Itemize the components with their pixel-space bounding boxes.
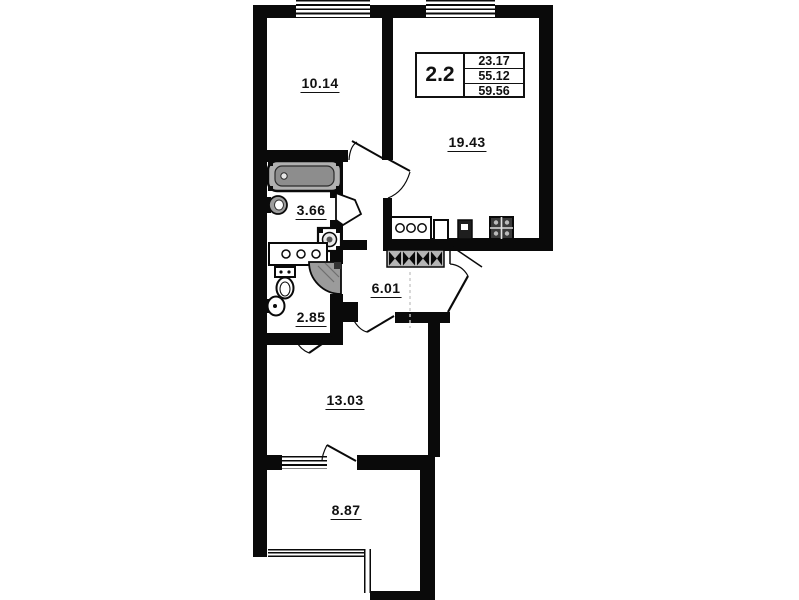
door-swing xyxy=(386,158,410,171)
door-arc xyxy=(353,319,367,332)
wm-door xyxy=(327,237,333,243)
room-label: 3.66 xyxy=(296,203,327,220)
counter-ring xyxy=(407,224,415,232)
door-swing xyxy=(352,141,384,159)
room-label: 19.43 xyxy=(447,135,486,152)
door-arc xyxy=(322,445,327,461)
counter-ring xyxy=(282,250,290,258)
tub-corner xyxy=(268,161,273,166)
title-block-row: 23.17 xyxy=(465,54,523,69)
wm-corner xyxy=(336,246,340,250)
counter-ring xyxy=(396,224,404,232)
room-label: 8.87 xyxy=(331,503,362,520)
room-label: 10.14 xyxy=(300,76,339,93)
floor-plan: 10.14 19.43 3.66 6.01 2.85 13.03 8.87 2.… xyxy=(0,0,799,600)
title-block-values: 23.17 55.12 59.56 xyxy=(465,54,523,96)
toilet-dot xyxy=(287,270,290,273)
counter-ring xyxy=(297,250,305,258)
stove-burner xyxy=(505,231,509,235)
sink-drain xyxy=(273,304,277,308)
tub-corner xyxy=(336,161,341,166)
door-arc xyxy=(297,342,309,353)
door-arc xyxy=(450,264,468,276)
stove-burner xyxy=(494,231,498,235)
room-label: 6.01 xyxy=(371,281,402,298)
title-block-row: 55.12 xyxy=(465,69,523,84)
entrance-door-swing xyxy=(448,276,468,312)
unit-type: 2.2 xyxy=(417,54,465,96)
door-arc xyxy=(388,172,410,198)
door-swing xyxy=(309,337,332,353)
tub-corner xyxy=(336,186,341,191)
stove-burner xyxy=(494,220,498,224)
toilet-icon xyxy=(277,278,294,299)
room-label: 13.03 xyxy=(325,393,364,410)
door-swing xyxy=(327,445,356,461)
bathtub-drain xyxy=(281,173,287,179)
title-block-row: 59.56 xyxy=(465,84,523,98)
shower-corner xyxy=(334,262,341,269)
sink-bowl xyxy=(275,200,284,210)
counter-ring xyxy=(418,224,426,232)
appliance-mark xyxy=(461,224,468,230)
stove-burner xyxy=(505,220,509,224)
title-block: 2.2 23.17 55.12 59.56 xyxy=(415,52,525,98)
kitchen-cabinet-icon xyxy=(434,220,448,240)
fixtures-layer xyxy=(0,0,799,600)
counter-ring xyxy=(312,250,320,258)
toilet-tank xyxy=(275,267,295,277)
toilet-dot xyxy=(279,270,282,273)
wm-corner xyxy=(319,229,323,233)
door-swing xyxy=(336,193,361,225)
door-swing xyxy=(367,316,394,332)
room-label: 2.85 xyxy=(296,310,327,327)
wm-corner xyxy=(336,229,340,233)
door-arc xyxy=(349,142,357,160)
tub-corner xyxy=(268,186,273,191)
corridor-door-swing xyxy=(451,246,482,267)
